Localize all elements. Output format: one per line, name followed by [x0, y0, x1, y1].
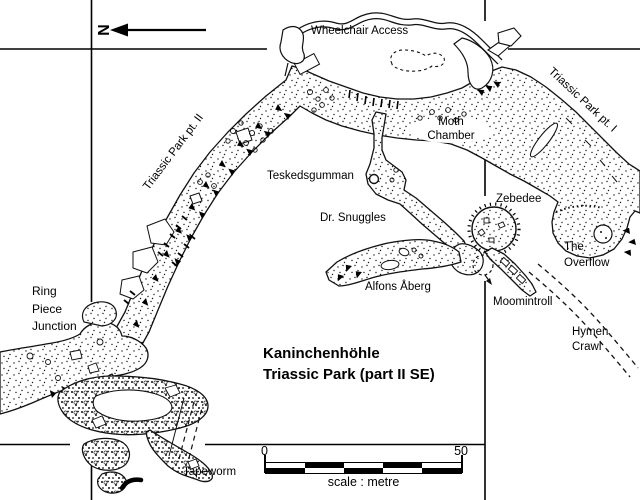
cave-survey-map: N Wheelchair Access Triassic Park pt. II…	[0, 0, 640, 500]
map-title: Kaninchenhöhle Triassic Park (part II SE…	[263, 343, 435, 385]
label-the-overflow: The Overflow	[564, 240, 609, 271]
label-wheelchair-access: Wheelchair Access	[311, 25, 408, 38]
hymen-crawl-passage	[529, 264, 638, 377]
cave-map-canvas	[0, 0, 640, 500]
scale-bar: 0 50 scale : metre	[265, 454, 462, 490]
moomintroll-passage	[485, 248, 536, 296]
label-teskedsgumman: Teskedsgumman	[267, 170, 354, 183]
label-alfons-aberg: Alfons Åberg	[365, 281, 431, 294]
label-ring-piece-junction: Ring Piece Junction	[32, 283, 77, 336]
label-dr-snuggles: Dr. Snuggles	[320, 212, 386, 225]
main-passage-outline	[108, 66, 640, 351]
north-arrow-icon	[110, 24, 206, 37]
label-hymen-crawl: Hymen Crawl	[572, 325, 608, 355]
scale-caption: scale : metre	[265, 475, 462, 489]
map-title-line2: Triassic Park (part II SE)	[263, 366, 435, 383]
north-label: N	[93, 21, 111, 39]
scale-bar-segments	[265, 462, 462, 474]
label-moth-chamber: Moth Chamber	[418, 116, 484, 143]
label-moomintroll: Moomintroll	[493, 296, 552, 309]
label-tapeworm: Tapeworm	[183, 466, 236, 479]
map-title-line1: Kaninchenhöhle	[263, 345, 380, 362]
alfons-aberg-passage	[326, 240, 461, 286]
label-zebedee: Zebedee	[496, 193, 541, 206]
